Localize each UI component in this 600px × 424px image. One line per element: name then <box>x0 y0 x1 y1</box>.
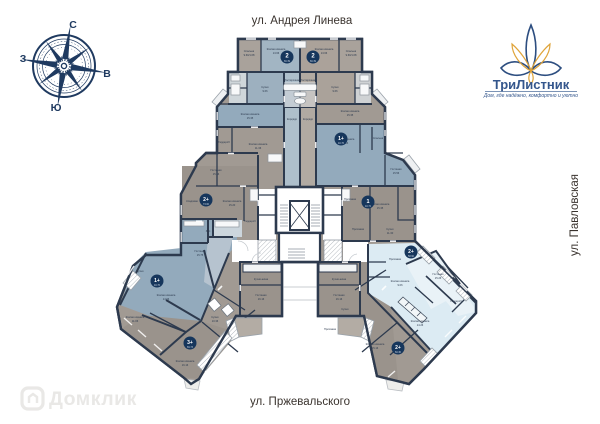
svg-text:9.60/1.68: 9.60/1.68 <box>346 53 357 57</box>
svg-text:15.20: 15.20 <box>229 203 236 207</box>
svg-text:73.00: 73.00 <box>203 203 210 206</box>
svg-text:15.35: 15.35 <box>377 206 384 210</box>
svg-text:Кухня: Кухня <box>342 307 350 311</box>
svg-text:Спальня: Спальня <box>346 49 357 53</box>
svg-text:Постирочная: Постирочная <box>300 78 316 82</box>
svg-text:ул. Андрея Линева: ул. Андрея Линева <box>252 15 353 27</box>
svg-text:9.66: 9.66 <box>332 89 338 93</box>
svg-text:13.66: 13.66 <box>273 51 280 55</box>
svg-text:11.06: 11.06 <box>132 319 139 323</box>
svg-text:Кухня: Кухня <box>387 227 395 231</box>
svg-text:Жилая комната: Жилая комната <box>267 47 286 51</box>
svg-text:Коридор: Коридор <box>287 117 298 121</box>
svg-text:16.16: 16.16 <box>258 297 265 301</box>
svg-text:16.16: 16.16 <box>336 297 343 301</box>
svg-text:Спальня: Спальня <box>373 136 384 140</box>
svg-text:ул. Пржевальского: ул. Пржевальского <box>250 396 350 408</box>
svg-text:Гардероб: Гардероб <box>218 140 230 144</box>
svg-text:Жилая комната: Жилая комната <box>249 142 268 146</box>
svg-text:9.06: 9.06 <box>397 283 403 287</box>
svg-text:Жилая комната: Жилая комната <box>315 47 334 51</box>
svg-text:15.56: 15.56 <box>393 171 400 175</box>
svg-text:Жилая комната: Жилая комната <box>126 315 145 319</box>
svg-text:Зал: Зал <box>206 229 211 233</box>
svg-text:15.26: 15.26 <box>435 276 442 280</box>
svg-text:Гостиная: Гостиная <box>195 249 206 253</box>
svg-text:В: В <box>103 68 111 80</box>
svg-text:11.36: 11.36 <box>255 146 262 150</box>
svg-text:Кухня: Кухня <box>212 315 220 319</box>
svg-text:16.16: 16.16 <box>182 363 189 367</box>
svg-text:С: С <box>69 19 77 31</box>
svg-text:15.75: 15.75 <box>197 253 204 257</box>
svg-text:58.90: 58.90 <box>408 255 415 258</box>
svg-text:Гостиная: Гостиная <box>211 168 222 172</box>
svg-text:Прихожая: Прихожая <box>344 197 357 201</box>
svg-text:Жилая комната: Жилая комната <box>366 342 385 346</box>
svg-text:Коридор: Коридор <box>303 117 314 121</box>
svg-text:Прихожая: Прихожая <box>324 327 337 331</box>
svg-text:40.72: 40.72 <box>365 205 372 208</box>
svg-text:40.76: 40.76 <box>338 142 345 145</box>
svg-text:Кухня: Кухня <box>137 269 145 273</box>
svg-text:Кухня-ниша: Кухня-ниша <box>254 277 269 281</box>
svg-text:Жилая комната: Жилая комната <box>223 199 242 203</box>
svg-text:15.56: 15.56 <box>213 172 220 176</box>
svg-text:Гостиная: Гостиная <box>334 293 345 297</box>
svg-text:ТриЛистник: ТриЛистник <box>493 77 570 92</box>
svg-text:Кухня: Кухня <box>262 85 270 89</box>
svg-text:9.60/1.68: 9.60/1.68 <box>244 53 255 57</box>
svg-text:ул. Павловская: ул. Павловская <box>569 174 581 256</box>
svg-text:14.06: 14.06 <box>163 297 170 301</box>
svg-text:Жилая комната: Жилая комната <box>411 319 430 323</box>
svg-text:66.39: 66.39 <box>284 60 291 63</box>
svg-text:Кладовая: Кладовая <box>186 199 198 203</box>
svg-text:Кухня: Кухня <box>332 85 340 89</box>
svg-text:Жилая комната: Жилая комната <box>391 279 410 283</box>
svg-text:Ю: Ю <box>51 102 62 114</box>
svg-text:9.66: 9.66 <box>262 89 268 93</box>
svg-text:Спальня: Спальня <box>244 49 255 53</box>
svg-text:Гостиная: Гостиная <box>256 293 267 297</box>
svg-text:13.66: 13.66 <box>321 51 328 55</box>
svg-text:Гардероб: Гардероб <box>244 219 256 223</box>
svg-text:Гостиная: Гостиная <box>433 272 444 276</box>
svg-text:60.30: 60.30 <box>395 351 402 354</box>
svg-text:Прихожая: Прихожая <box>352 227 365 231</box>
svg-text:15.16: 15.16 <box>372 346 379 350</box>
svg-text:40.76: 40.76 <box>154 284 161 287</box>
svg-text:11.30: 11.30 <box>387 231 394 235</box>
svg-text:14.26: 14.26 <box>417 323 424 327</box>
svg-text:Домклик: Домклик <box>49 388 137 410</box>
svg-text:Кухня-ниша: Кухня-ниша <box>332 277 347 281</box>
svg-text:Жилая комната: Жилая комната <box>176 359 195 363</box>
svg-text:15.35: 15.35 <box>347 113 354 117</box>
svg-text:Жилая комната: Жилая комната <box>157 293 176 297</box>
svg-text:10.36: 10.36 <box>212 319 219 323</box>
svg-text:69.73: 69.73 <box>187 346 194 349</box>
svg-text:Дом, где надёжно, комфортно и: Дом, где надёжно, комфортно и уютно <box>483 93 578 99</box>
svg-text:15.35: 15.35 <box>247 116 254 120</box>
svg-text:З: З <box>20 53 27 65</box>
svg-text:Жилая комната: Жилая комната <box>341 109 360 113</box>
svg-text:Гардероб: Гардероб <box>450 299 462 303</box>
svg-text:Жилая комната: Жилая комната <box>241 112 260 116</box>
svg-text:Постирочная: Постирочная <box>284 78 300 82</box>
svg-text:Прихожая: Прихожая <box>389 257 402 261</box>
svg-text:Гостиная: Гостиная <box>391 167 402 171</box>
svg-text:66.39: 66.39 <box>310 60 317 63</box>
